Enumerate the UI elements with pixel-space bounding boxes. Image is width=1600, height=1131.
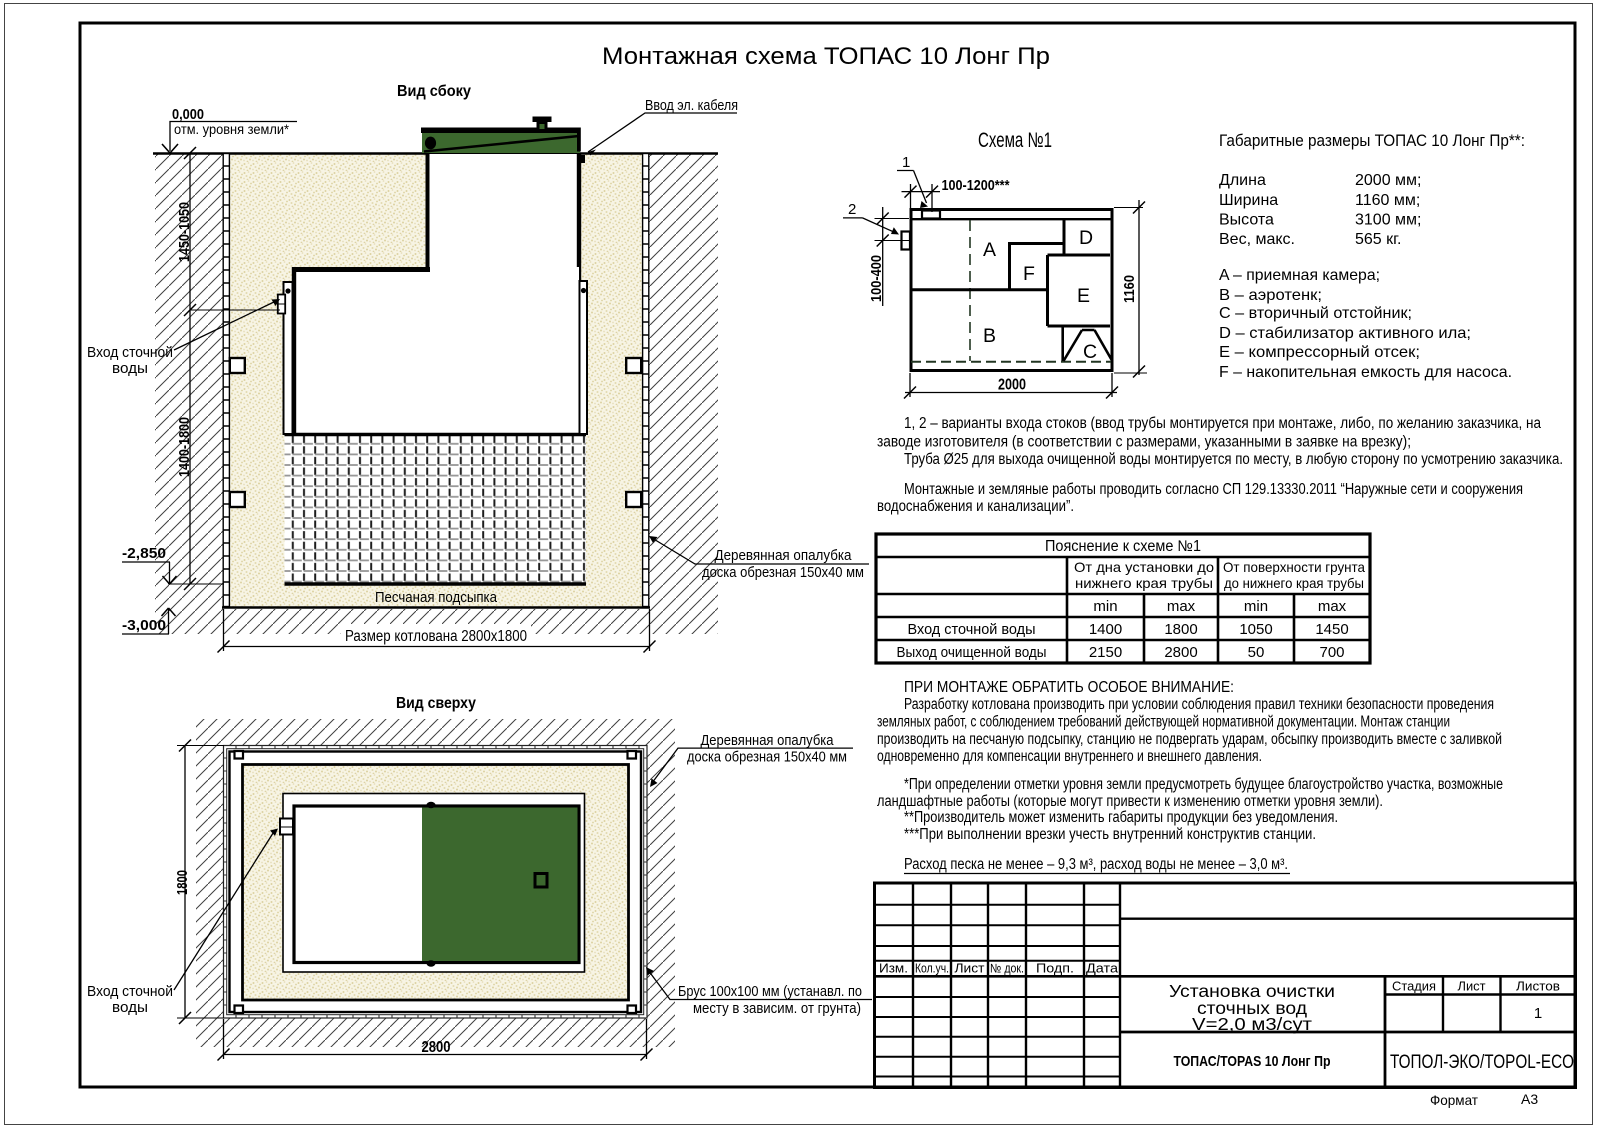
svg-text:**Производитель может изменить: **Производитель может изменить габариты … (904, 809, 1338, 826)
svg-text:Подп.: Подп. (1036, 962, 1074, 976)
svg-text:От дна установки до: От дна установки до (1074, 559, 1214, 575)
svg-text:Расход песка не менее – 9,3 м³: Расход песка не менее – 9,3 м³, расход в… (904, 856, 1288, 873)
svg-text:565 кг.: 565 кг. (1355, 231, 1401, 248)
svg-text:-3,000: -3,000 (122, 617, 166, 634)
svg-text:Монтажная схема ТОПАС 10 Лонг: Монтажная схема ТОПАС 10 Лонг Пр (602, 43, 1050, 70)
svg-text:***При выполнении врезки учест: ***При выполнении врезки учесть внутренн… (904, 826, 1316, 843)
svg-text:до нижнего края трубы: до нижнего края трубы (1224, 575, 1364, 591)
svg-text:одновременно для компенсации в: одновременно для компенсации внутреннего… (877, 748, 1262, 765)
svg-text:Разработку котлована производи: Разработку котлована производить при усл… (904, 696, 1494, 713)
svg-text:1400-1800: 1400-1800 (176, 417, 193, 477)
svg-text:A – приемная камера;: A – приемная камера; (1219, 267, 1380, 284)
svg-text:D: D (1079, 227, 1093, 249)
svg-text:Вход сточной: Вход сточной (87, 984, 173, 1000)
svg-text:1450: 1450 (1315, 621, 1348, 638)
svg-text:Дата: Дата (1086, 962, 1118, 976)
svg-text:Кол.уч.: Кол.уч. (915, 962, 949, 976)
svg-text:2800: 2800 (1164, 644, 1197, 661)
svg-text:Изм.: Изм. (879, 962, 908, 976)
svg-text:отм. уровня земли*: отм. уровня земли* (174, 122, 290, 137)
svg-text:Высота: Высота (1219, 212, 1274, 229)
svg-text:Длина: Длина (1219, 172, 1266, 189)
svg-text:100-400: 100-400 (868, 255, 885, 302)
svg-text:Схема №1: Схема №1 (978, 129, 1052, 152)
svg-text:1450-1050: 1450-1050 (176, 202, 193, 262)
svg-text:заводе изготовителя (в соответ: заводе изготовителя (в соответствии с ра… (877, 434, 1411, 451)
svg-text:1, 2 – варианты входа стоков: 1, 2 – варианты входа стоков (ввод трубы… (904, 415, 1541, 432)
svg-text:2000: 2000 (998, 377, 1026, 394)
svg-text:100-1200***: 100-1200*** (942, 177, 1010, 194)
svg-text:воды: воды (112, 361, 148, 377)
svg-text:E: E (1077, 285, 1090, 307)
svg-text:№ док.: № док. (990, 962, 1024, 976)
svg-text:ТОПАС/TOPAS 10 Лонг Пр: ТОПАС/TOPAS 10 Лонг Пр (1174, 1053, 1331, 1070)
svg-text:1160 мм;: 1160 мм; (1355, 192, 1420, 209)
svg-text:Вход сточной: Вход сточной (87, 345, 173, 361)
svg-text:Монтажные и земляные работы пр: Монтажные и земляные работы проводить со… (904, 481, 1523, 498)
svg-text:ландшафтные работы (которые мо: ландшафтные работы (которые могут привес… (877, 793, 1383, 810)
svg-text:производить на песчаную подсып: производить на песчаную подсыпку, станци… (877, 731, 1502, 748)
svg-text:max: max (1167, 598, 1196, 615)
svg-text:C: C (1083, 341, 1097, 363)
svg-text:Труба Ø25 для выхода очищенной: Труба Ø25 для выхода очищенной воды монт… (904, 451, 1563, 468)
svg-text:2800: 2800 (422, 1039, 451, 1056)
svg-text:50: 50 (1248, 644, 1265, 661)
svg-text:доска обрезная 150х40 мм: доска обрезная 150х40 мм (687, 750, 847, 766)
svg-text:От поверхности грунта: От поверхности грунта (1223, 559, 1365, 575)
svg-text:C – вторичный отстойник;: C – вторичный отстойник; (1219, 305, 1412, 322)
svg-text:ТОПОЛ-ЭКО/TOPOL-ECO: ТОПОЛ-ЭКО/TOPOL-ECO (1390, 1051, 1574, 1073)
svg-text:Пояснение к схеме №1: Пояснение к схеме №1 (1045, 538, 1201, 555)
svg-text:3100 мм;: 3100 мм; (1355, 212, 1421, 229)
svg-text:1800: 1800 (174, 870, 191, 895)
svg-text:min: min (1244, 598, 1268, 615)
svg-text:Брус 100х100 мм (устанавл. по: Брус 100х100 мм (устанавл. по (678, 984, 862, 1000)
svg-text:1400: 1400 (1089, 621, 1122, 638)
svg-text:Вес, макс.: Вес, макс. (1219, 231, 1295, 248)
svg-text:Размер котлована 2800х1800: Размер котлована 2800х1800 (345, 628, 527, 645)
svg-text:воды: воды (112, 1000, 148, 1016)
svg-text:B – аэротенк;: B – аэротенк; (1219, 287, 1322, 304)
svg-text:Листов: Листов (1516, 979, 1560, 994)
svg-text:доска обрезная 150х40 мм: доска обрезная 150х40 мм (702, 565, 864, 581)
svg-text:Вход сточной воды: Вход сточной воды (908, 621, 1036, 638)
svg-text:E – компрессорный отсек;: E – компрессорный отсек; (1219, 344, 1420, 361)
svg-text:водоснабжения и канализации”.: водоснабжения и канализации”. (877, 498, 1074, 515)
svg-text:Стадия: Стадия (1392, 979, 1436, 994)
svg-text:V=2,0 м3/сут: V=2,0 м3/сут (1192, 1014, 1312, 1034)
svg-text:D – стабилизатор активного ила: D – стабилизатор активного ила; (1219, 325, 1471, 342)
svg-text:1800: 1800 (1164, 621, 1197, 638)
svg-text:Деревянная опалубка: Деревянная опалубка (701, 733, 835, 749)
svg-text:Выход очищенной воды: Выход очищенной воды (897, 644, 1047, 661)
svg-text:1160: 1160 (1121, 275, 1138, 303)
svg-text:min: min (1093, 598, 1117, 615)
svg-text:Ввод эл. кабеля: Ввод эл. кабеля (645, 98, 738, 114)
svg-text:1: 1 (1534, 1005, 1542, 1022)
svg-text:0,000: 0,000 (172, 106, 204, 123)
svg-text:Вид сбоку: Вид сбоку (397, 83, 471, 100)
svg-text:F – накопительная емкость для: F – накопительная емкость для насоса. (1219, 364, 1512, 381)
svg-text:F: F (1023, 263, 1035, 285)
svg-text:Лист: Лист (1458, 979, 1486, 994)
svg-text:700: 700 (1319, 644, 1344, 661)
svg-text:Лист: Лист (955, 962, 985, 976)
svg-text:-2,850: -2,850 (122, 545, 166, 562)
svg-text:B: B (983, 325, 996, 347)
svg-text:1: 1 (902, 154, 910, 171)
svg-text:*При определении отметки уровн: *При определении отметки уровня земли пр… (904, 776, 1503, 793)
svg-text:земляных работ, с соблюдением: земляных работ, с соблюдением требований… (877, 714, 1450, 731)
svg-text:2000 мм;: 2000 мм; (1355, 172, 1421, 189)
svg-text:месту в зависим. от грунта): месту в зависим. от грунта) (693, 1001, 861, 1017)
svg-text:Формат: Формат (1430, 1092, 1479, 1108)
svg-text:2150: 2150 (1089, 644, 1122, 661)
svg-text:Деревянная опалубка: Деревянная опалубка (715, 548, 853, 564)
svg-text:1050: 1050 (1239, 621, 1272, 638)
svg-text:А3: А3 (1521, 1091, 1538, 1107)
svg-text:Ширина: Ширина (1219, 192, 1278, 209)
svg-text:max: max (1318, 598, 1347, 615)
svg-text:ПРИ МОНТАЖЕ ОБРАТИТЬ ОСОБОЕ ВН: ПРИ МОНТАЖЕ ОБРАТИТЬ ОСОБОЕ ВНИМАНИЕ: (904, 679, 1234, 696)
svg-text:A: A (983, 239, 996, 261)
svg-text:Вид сверху: Вид сверху (396, 695, 476, 712)
svg-text:Габаритные размеры ТОПАС 10 Ло: Габаритные размеры ТОПАС 10 Лонг Пр**: (1219, 132, 1525, 150)
svg-text:Песчаная подсыпка: Песчаная подсыпка (375, 589, 498, 606)
svg-text:нижнего края трубы: нижнего края трубы (1075, 575, 1213, 591)
svg-text:2: 2 (848, 201, 856, 218)
